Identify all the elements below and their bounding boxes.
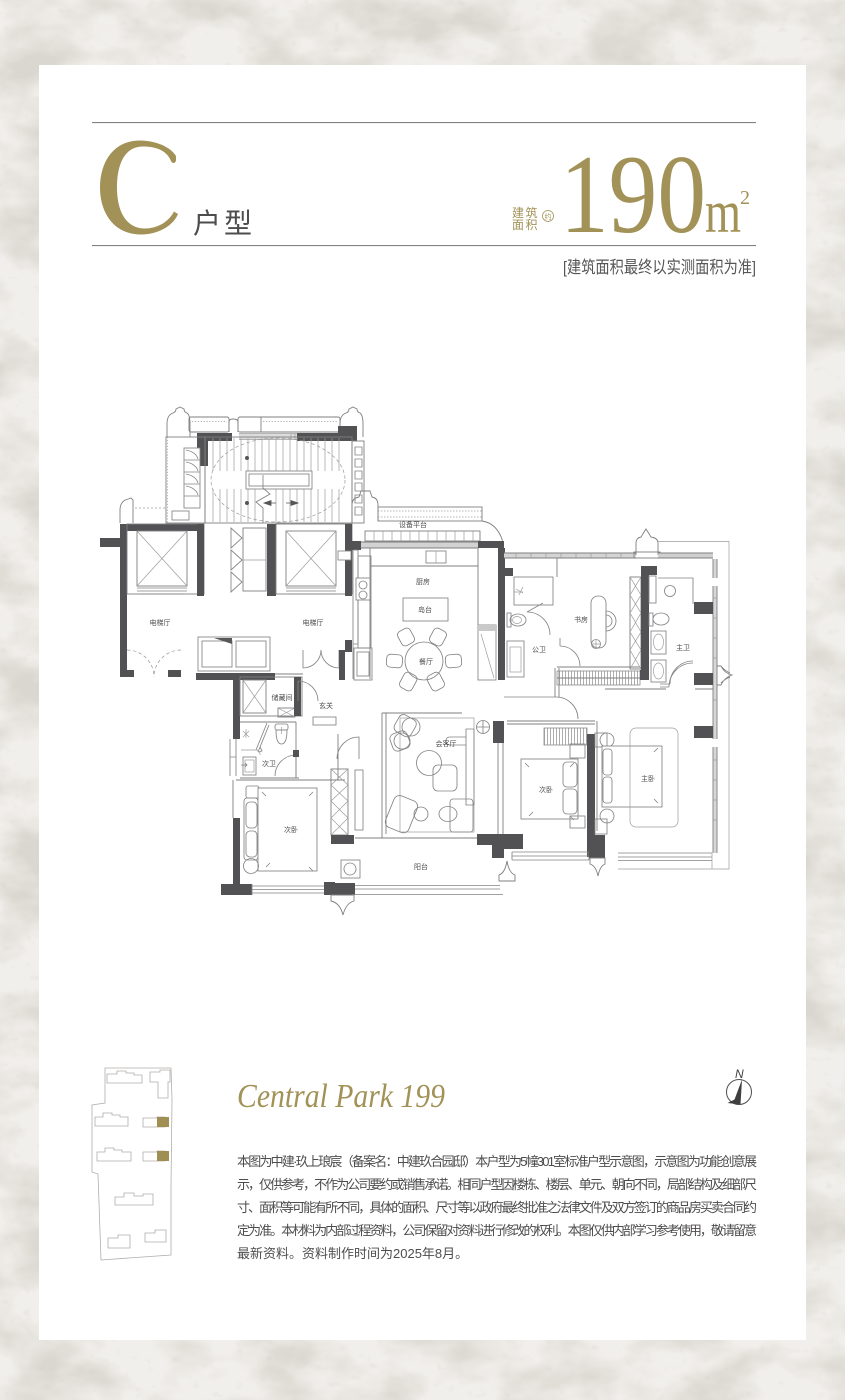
svg-text:餐厅: 餐厅 [419, 657, 433, 666]
svg-text:N: N [735, 1067, 744, 1081]
svg-text:m: m [705, 179, 741, 245]
svg-text:2: 2 [740, 187, 750, 209]
svg-text:阳台: 阳台 [414, 862, 428, 871]
svg-text:岛台: 岛台 [418, 605, 432, 614]
svg-text:公卫: 公卫 [532, 646, 546, 654]
svg-text:寸、面积等可能有所不同，具体的面积、尺寸等以政府最终批准之法: 寸、面积等可能有所不同，具体的面积、尺寸等以政府最终批准之法律文件及双方签订的商… [237, 1200, 757, 1215]
svg-text:厨房: 厨房 [416, 577, 430, 586]
svg-text:储藏间: 储藏间 [272, 693, 293, 702]
svg-text:示，仅供参考，不作为公司要约或销售承诺。相同户型因楼栋、楼层: 示，仅供参考，不作为公司要约或销售承诺。相同户型因楼栋、楼层、单元、朝向不同，局… [237, 1177, 757, 1192]
svg-text:户型: 户型 [193, 208, 255, 239]
svg-text:最新资料。资料制作时间为2025年8月。: 最新资料。资料制作时间为2025年8月。 [237, 1246, 468, 1261]
svg-text:次卧: 次卧 [284, 825, 298, 834]
svg-text:次卧: 次卧 [539, 785, 553, 794]
svg-text:[建筑面积最终以实测面积为准]: [建筑面积最终以实测面积为准] [563, 258, 756, 277]
svg-text:次卫: 次卫 [262, 759, 276, 768]
svg-text:本图为中建·玖上琅宸（备案名：中建玖合园邸）本户型为5幢30: 本图为中建·玖上琅宸（备案名：中建玖合园邸）本户型为5幢301室标准户型示意图，… [237, 1154, 757, 1169]
svg-text:主卫: 主卫 [676, 643, 690, 652]
svg-text:书房: 书房 [574, 615, 588, 624]
svg-text:电梯厅: 电梯厅 [150, 618, 171, 627]
svg-text:Central Park 199: Central Park 199 [237, 1078, 445, 1115]
svg-text:设备平台: 设备平台 [399, 520, 427, 529]
svg-text:面积: 面积 [512, 218, 539, 232]
svg-text:定为准。本材料为内部过程资料，公司保留对资料进行修改的权利。: 定为准。本材料为内部过程资料，公司保留对资料进行修改的权利。本图仅供内部学习参考… [237, 1223, 757, 1238]
svg-text:会客厅: 会客厅 [436, 739, 457, 748]
svg-text:主卧: 主卧 [641, 774, 655, 783]
svg-text:电梯厅: 电梯厅 [303, 618, 324, 627]
svg-text:190: 190 [560, 133, 706, 257]
svg-text:约: 约 [545, 212, 552, 221]
svg-text:玄关: 玄关 [319, 701, 333, 710]
